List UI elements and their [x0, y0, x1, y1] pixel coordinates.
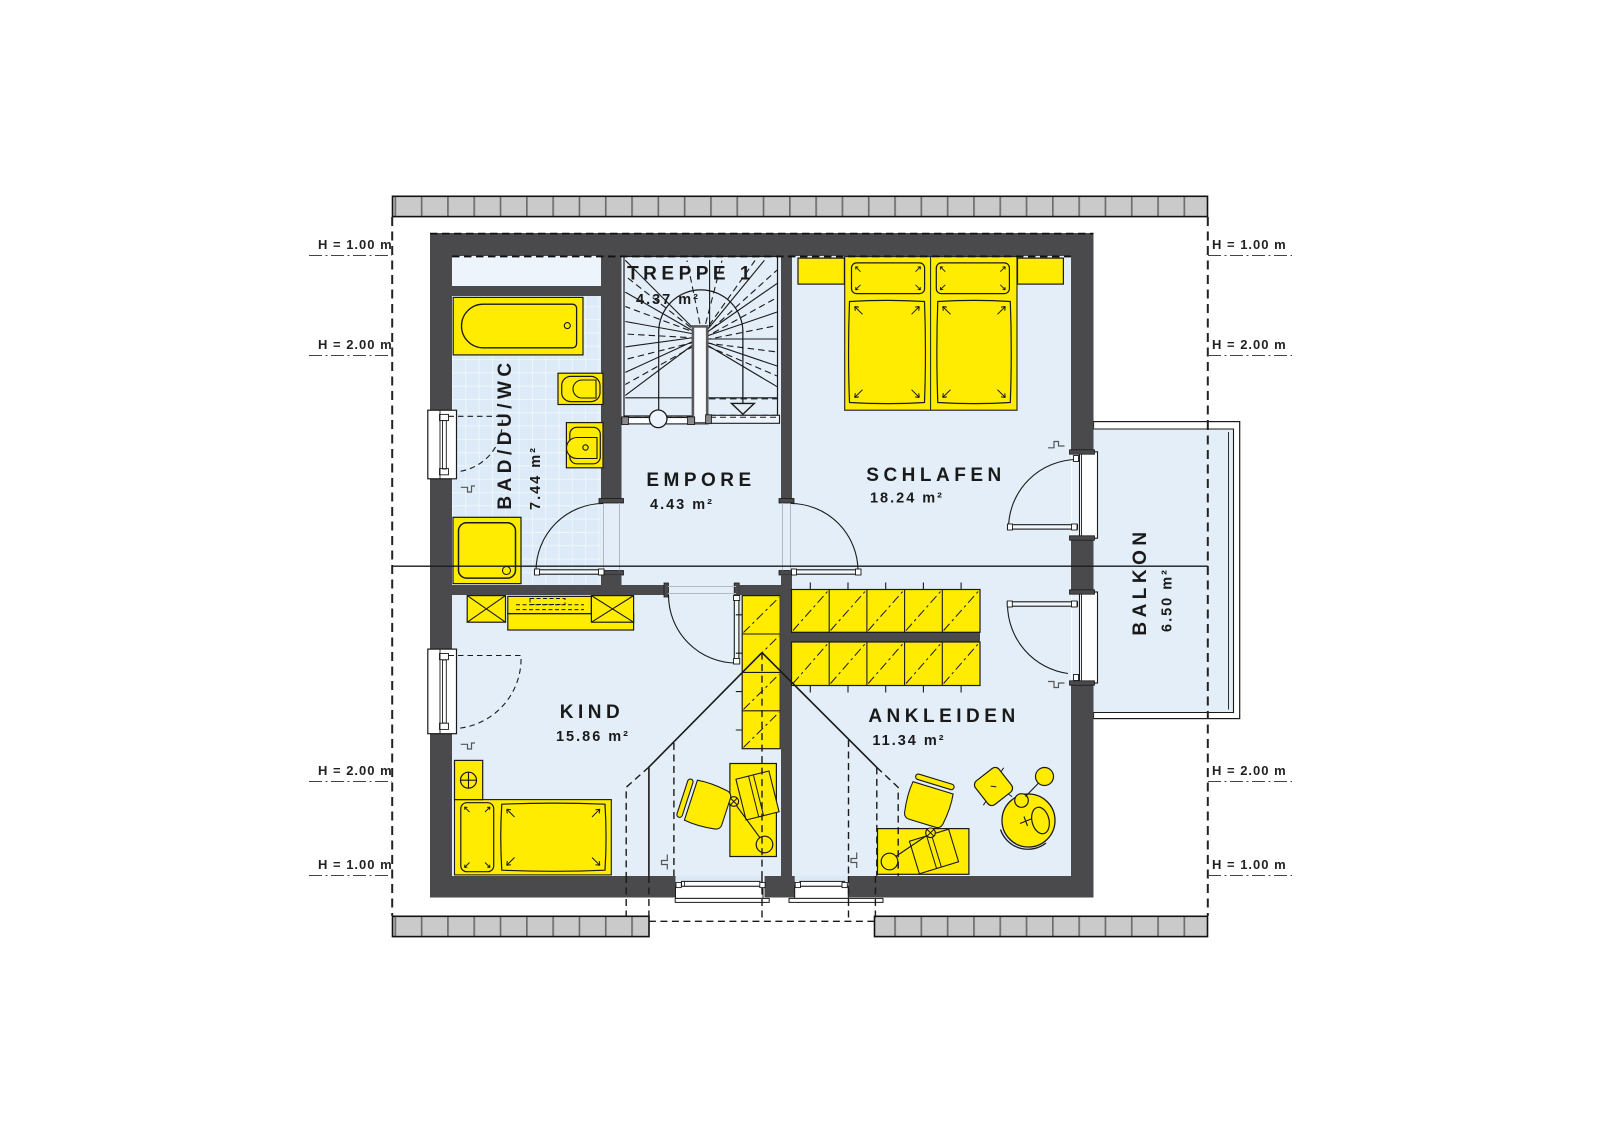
svg-text:7.44 m²: 7.44 m²	[528, 446, 544, 510]
svg-text:EMPORE: EMPORE	[646, 470, 755, 491]
svg-text:15.86 m²: 15.86 m²	[556, 729, 630, 745]
svg-text:H = 2.00 m: H = 2.00 m	[1212, 337, 1287, 352]
svg-text:6.50 m²: 6.50 m²	[1160, 568, 1176, 632]
svg-text:TREPPE 1: TREPPE 1	[627, 264, 755, 285]
svg-text:ANKLEIDEN: ANKLEIDEN	[868, 706, 1019, 727]
svg-text:11.34 m²: 11.34 m²	[872, 733, 945, 749]
svg-text:H = 1.00 m: H = 1.00 m	[1212, 857, 1287, 872]
svg-text:H = 2.00 m: H = 2.00 m	[318, 337, 393, 352]
svg-text:H = 2.00 m: H = 2.00 m	[318, 763, 393, 778]
svg-text:BALKON: BALKON	[1130, 527, 1151, 635]
svg-text:18.24 m²: 18.24 m²	[870, 491, 944, 507]
svg-text:H = 2.00 m: H = 2.00 m	[1212, 763, 1287, 778]
svg-text:H = 1.00 m: H = 1.00 m	[318, 857, 393, 872]
svg-text:KIND: KIND	[560, 702, 624, 723]
svg-text:H = 1.00 m: H = 1.00 m	[318, 237, 393, 252]
svg-text:BAD/DU/WC: BAD/DU/WC	[495, 358, 516, 509]
svg-text:SCHLAFEN: SCHLAFEN	[866, 465, 1005, 486]
svg-text:4.43 m²: 4.43 m²	[650, 497, 714, 513]
svg-text:4.37 m²: 4.37 m²	[636, 292, 700, 308]
svg-text:H = 1.00 m: H = 1.00 m	[1212, 237, 1287, 252]
